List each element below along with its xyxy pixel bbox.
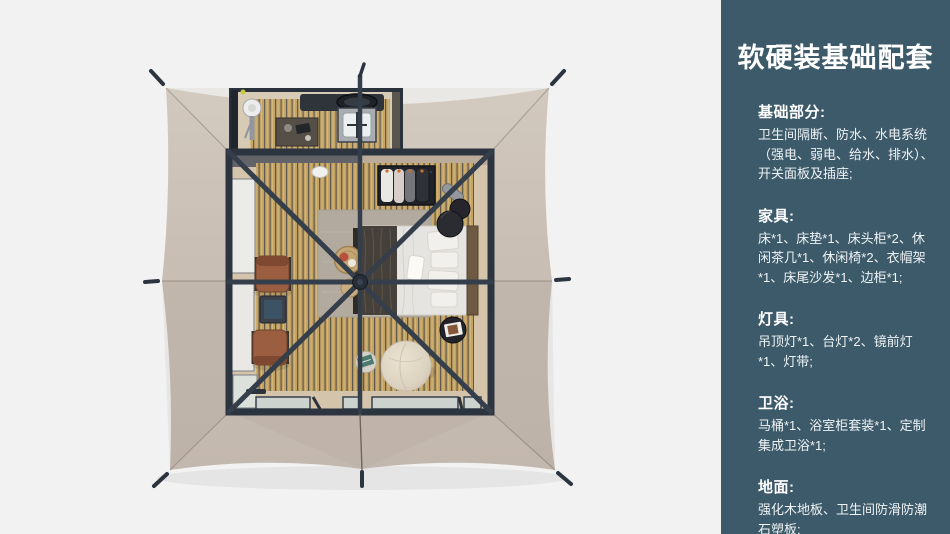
tent-stake <box>151 71 163 84</box>
section-heading: 家具: <box>758 205 934 226</box>
dressing-table <box>276 118 318 146</box>
tea-table <box>260 296 286 323</box>
info-panel: 软硬装基础配套 基础部分: 卫生间隔断、防水、水电系统（强电、弱电、给水、排水）… <box>721 0 950 534</box>
section-heading: 基础部分: <box>758 101 934 122</box>
bathroom-vanity <box>338 108 376 142</box>
lounge-chair-top <box>255 256 292 292</box>
corner-table <box>440 317 466 343</box>
section-body: 吊顶灯*1、台灯*2、镜前灯*1、灯带; <box>758 332 934 371</box>
slide: 软硬装基础配套 基础部分: 卫生间隔断、防水、水电系统（强电、弱电、给水、排水）… <box>0 0 950 534</box>
section-body: 卫生间隔断、防水、水电系统（强电、弱电、给水、排水）、开关面板及插座; <box>758 125 934 184</box>
bathroom-area <box>231 90 401 155</box>
section-heading: 卫浴: <box>758 392 934 413</box>
panel-section-basics: 基础部分: 卫生间隔断、防水、水电系统（强电、弱电、给水、排水）、开关面板及插座… <box>758 101 934 184</box>
headboard <box>467 226 478 315</box>
panel-section-bathroom: 卫浴: 马桶*1、浴室柜套装*1、定制集成卫浴*1; <box>758 392 934 455</box>
panel-title: 软硬装基础配套 <box>727 36 944 75</box>
panel-section-lighting: 灯具: 吊顶灯*1、台灯*2、镜前灯*1、灯带; <box>758 308 934 371</box>
tent-stake <box>552 71 564 84</box>
tent-floorplan-render <box>0 0 721 534</box>
ceiling-lamp <box>312 167 328 178</box>
panel-sections: 基础部分: 卫生间隔断、防水、水电系统（强电、弱电、给水、排水）、开关面板及插座… <box>721 75 950 534</box>
section-body: 床*1、床垫*1、床头柜*2、休闲茶几*1、休闲椅*2、衣帽架*1、床尾沙发*1… <box>758 229 934 288</box>
panel-section-furniture: 家具: 床*1、床垫*1、床头柜*2、休闲茶几*1、休闲椅*2、衣帽架*1、床尾… <box>758 205 934 288</box>
tent-stake <box>556 279 569 280</box>
tent-stake <box>145 281 158 282</box>
panel-section-floor: 地面: 强化木地板、卫生间防滑防潮石塑板; <box>758 476 934 534</box>
accent-light <box>241 90 246 95</box>
tent-floorplan-svg <box>0 0 721 534</box>
section-heading: 灯具: <box>758 308 934 329</box>
clothes-rack <box>378 166 435 205</box>
section-body: 强化木地板、卫生间防滑防潮石塑板; <box>758 500 934 534</box>
section-heading: 地面: <box>758 476 934 497</box>
pole-tip <box>360 64 364 76</box>
section-body: 马桶*1、浴室柜套装*1、定制集成卫浴*1; <box>758 416 934 455</box>
